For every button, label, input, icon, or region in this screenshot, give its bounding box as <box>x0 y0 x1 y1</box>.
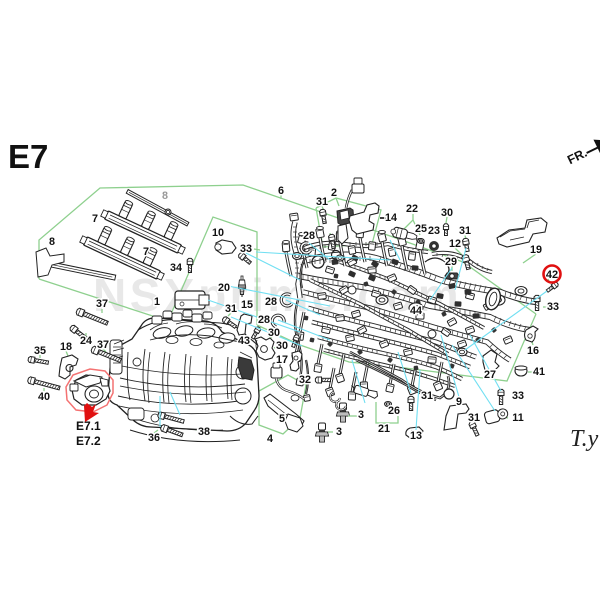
svg-text:E7: E7 <box>8 138 48 175</box>
svg-text:E7.2: E7.2 <box>76 434 101 448</box>
svg-text:31: 31 <box>459 225 471 237</box>
svg-text:30: 30 <box>441 207 453 219</box>
svg-text:31: 31 <box>225 303 237 315</box>
svg-text:12: 12 <box>449 238 461 250</box>
svg-text:18: 18 <box>60 341 72 353</box>
svg-text:3: 3 <box>336 426 342 438</box>
svg-text:44: 44 <box>410 305 422 317</box>
svg-text:9: 9 <box>456 396 462 408</box>
svg-text:14: 14 <box>385 212 397 224</box>
svg-text:36: 36 <box>148 432 160 444</box>
svg-text:T.y: T.y <box>570 426 599 452</box>
svg-text:31: 31 <box>421 390 433 402</box>
svg-text:37: 37 <box>97 339 109 351</box>
svg-text:7: 7 <box>143 246 149 258</box>
svg-text:33: 33 <box>240 243 252 255</box>
svg-text:21: 21 <box>378 423 390 435</box>
svg-text:NSXprime.com: NSXprime.com <box>93 269 462 321</box>
svg-text:7: 7 <box>92 213 98 225</box>
svg-text:30: 30 <box>276 340 288 352</box>
svg-text:28: 28 <box>258 314 270 326</box>
svg-text:20: 20 <box>218 282 230 294</box>
svg-text:11: 11 <box>512 412 523 424</box>
svg-text:37: 37 <box>96 298 108 310</box>
svg-text:38: 38 <box>198 426 210 438</box>
svg-text:35: 35 <box>34 345 46 357</box>
svg-text:23: 23 <box>428 225 440 237</box>
svg-text:29: 29 <box>445 256 457 268</box>
svg-text:3: 3 <box>358 409 364 421</box>
svg-text:30: 30 <box>268 327 280 339</box>
svg-text:8: 8 <box>162 190 168 202</box>
svg-text:31: 31 <box>316 196 328 208</box>
svg-text:33: 33 <box>512 390 524 402</box>
svg-text:43: 43 <box>238 335 250 347</box>
svg-text:5: 5 <box>279 413 285 425</box>
svg-text:25: 25 <box>415 223 427 235</box>
svg-text:17: 17 <box>276 354 288 366</box>
svg-text:22: 22 <box>406 203 418 215</box>
svg-text:24: 24 <box>80 335 92 347</box>
svg-text:E7.1: E7.1 <box>76 419 101 433</box>
svg-text:31: 31 <box>468 412 480 424</box>
svg-text:2: 2 <box>331 187 337 199</box>
svg-text:33: 33 <box>547 301 559 313</box>
svg-text:4: 4 <box>267 433 273 445</box>
svg-text:1: 1 <box>154 296 160 308</box>
svg-text:32: 32 <box>299 374 311 386</box>
svg-text:28: 28 <box>265 296 277 308</box>
svg-text:41: 41 <box>533 366 545 378</box>
svg-text:10: 10 <box>212 227 224 239</box>
svg-text:15: 15 <box>241 299 253 311</box>
svg-text:27: 27 <box>484 369 496 381</box>
svg-text:13: 13 <box>410 430 422 442</box>
svg-text:40: 40 <box>38 391 50 403</box>
svg-text:34: 34 <box>170 262 182 274</box>
svg-text:28: 28 <box>303 230 315 242</box>
svg-text:26: 26 <box>388 405 400 417</box>
svg-text:16: 16 <box>527 345 539 357</box>
svg-text:42: 42 <box>546 269 558 281</box>
svg-text:8: 8 <box>49 236 55 248</box>
svg-text:6: 6 <box>278 185 284 197</box>
svg-text:19: 19 <box>530 244 542 256</box>
